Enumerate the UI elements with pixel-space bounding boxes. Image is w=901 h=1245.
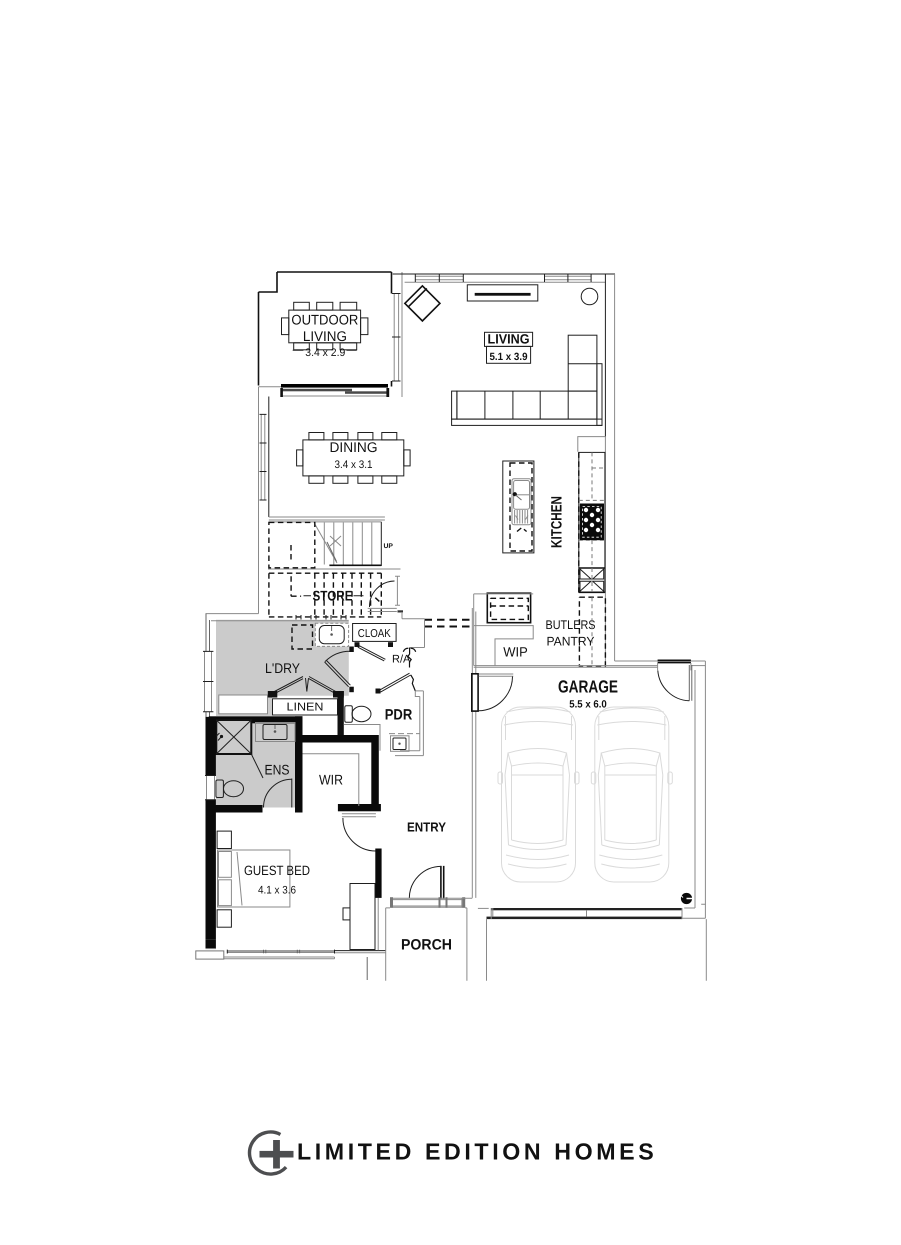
svg-text:GUEST BED: GUEST BED — [244, 863, 310, 878]
svg-text:OUTDOOR: OUTDOOR — [291, 311, 358, 327]
svg-text:LIMITED EDITION HOMES: LIMITED EDITION HOMES — [297, 1139, 657, 1165]
svg-text:5.5 x 6.0: 5.5 x 6.0 — [569, 699, 607, 711]
svg-text:PANTRY: PANTRY — [547, 635, 596, 649]
svg-text:PORCH: PORCH — [401, 937, 452, 954]
svg-text:ENS: ENS — [265, 762, 290, 778]
svg-text:STORE: STORE — [313, 588, 353, 604]
svg-text:5.1 x 3.9: 5.1 x 3.9 — [490, 351, 528, 363]
svg-text:ENTRY: ENTRY — [407, 820, 446, 835]
svg-text:DINING: DINING — [330, 439, 378, 455]
svg-text:BUTLERS: BUTLERS — [546, 618, 596, 632]
svg-text:CLOAK: CLOAK — [358, 628, 391, 640]
svg-text:LIVING: LIVING — [303, 328, 347, 344]
svg-text:3.4 x 3.1: 3.4 x 3.1 — [335, 459, 373, 471]
svg-text:UP: UP — [384, 543, 394, 550]
svg-text:WIR: WIR — [319, 772, 343, 788]
svg-text:3.4 x 2.9: 3.4 x 2.9 — [305, 347, 345, 359]
svg-text:PDR: PDR — [385, 707, 413, 724]
svg-text:WIP: WIP — [503, 645, 528, 660]
svg-text:KITCHEN: KITCHEN — [549, 496, 566, 548]
svg-text:GARAGE: GARAGE — [558, 676, 618, 696]
svg-text:4.1 x 3.6: 4.1 x 3.6 — [258, 885, 296, 897]
svg-text:LIVING: LIVING — [488, 332, 530, 347]
svg-text:L'DRY: L'DRY — [265, 660, 301, 676]
svg-text:LINEN: LINEN — [287, 702, 324, 714]
